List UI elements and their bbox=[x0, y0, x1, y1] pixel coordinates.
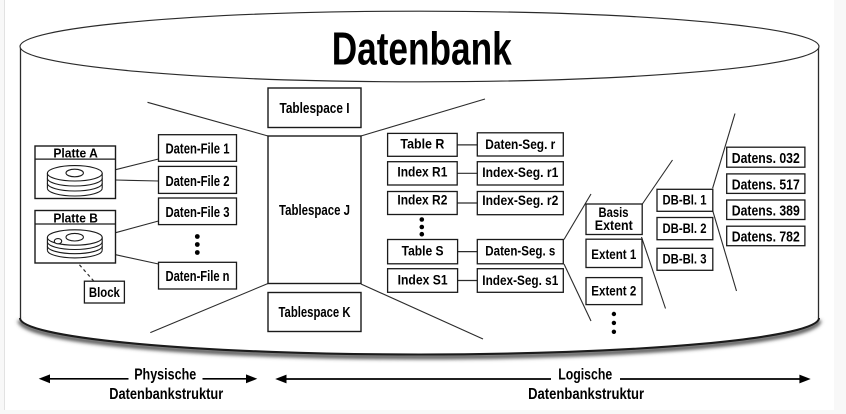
svg-text:Index S1: Index S1 bbox=[398, 272, 448, 288]
svg-text:Physische: Physische bbox=[134, 366, 196, 383]
svg-text:Platte A: Platte A bbox=[53, 146, 98, 160]
svg-text:Platte B: Platte B bbox=[53, 212, 98, 226]
svg-text:Datenbankstruktur: Datenbankstruktur bbox=[528, 386, 644, 403]
svg-text:Index-Seg. s1: Index-Seg. s1 bbox=[482, 272, 558, 288]
svg-text:Daten-File 1: Daten-File 1 bbox=[166, 141, 230, 158]
svg-text:Datenbank: Datenbank bbox=[332, 22, 512, 74]
svg-text:Daten-Seg. r: Daten-Seg. r bbox=[485, 136, 555, 152]
svg-text:Datens. 032: Datens. 032 bbox=[732, 151, 800, 167]
svg-text:Daten-File n: Daten-File n bbox=[166, 268, 230, 285]
svg-text:Datens. 517: Datens. 517 bbox=[732, 177, 800, 193]
svg-text:Daten-Seg. s: Daten-Seg. s bbox=[485, 243, 555, 259]
svg-text:Table S: Table S bbox=[402, 243, 444, 259]
svg-text:Extent 2: Extent 2 bbox=[591, 282, 636, 298]
svg-text:Tablespace K: Tablespace K bbox=[279, 305, 351, 321]
svg-text:Index-Seg. r2: Index-Seg. r2 bbox=[482, 192, 558, 208]
svg-text:Datens. 782: Datens. 782 bbox=[732, 230, 800, 246]
svg-text:Index-Seg. r1: Index-Seg. r1 bbox=[482, 164, 558, 180]
svg-text:Datens. 389: Datens. 389 bbox=[732, 204, 800, 220]
svg-text:DB-Bl. 3: DB-Bl. 3 bbox=[663, 252, 707, 267]
svg-text:Tablespace I: Tablespace I bbox=[280, 101, 350, 117]
svg-text:DB-Bl. 2: DB-Bl. 2 bbox=[663, 221, 707, 236]
svg-text:Index R1: Index R1 bbox=[397, 164, 447, 180]
svg-text:DB-Bl. 1: DB-Bl. 1 bbox=[663, 193, 707, 208]
svg-text:Extent: Extent bbox=[595, 217, 633, 233]
svg-text:Table R: Table R bbox=[400, 136, 444, 152]
svg-text:Datenbankstruktur: Datenbankstruktur bbox=[109, 386, 223, 403]
svg-text:Index R2: Index R2 bbox=[397, 192, 447, 208]
svg-text:Block: Block bbox=[89, 284, 120, 300]
svg-text:Daten-File 3: Daten-File 3 bbox=[166, 204, 230, 221]
svg-text:Tablespace J: Tablespace J bbox=[279, 203, 350, 219]
svg-text:Daten-File 2: Daten-File 2 bbox=[166, 173, 230, 190]
svg-text:Logische: Logische bbox=[558, 366, 612, 383]
svg-text:Extent 1: Extent 1 bbox=[591, 246, 636, 262]
